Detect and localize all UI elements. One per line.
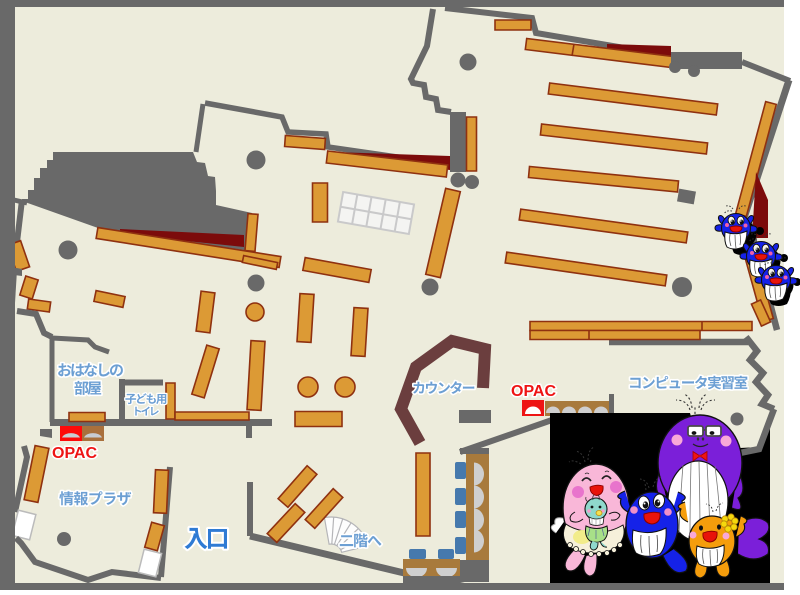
svg-text:OPAC: OPAC bbox=[52, 445, 97, 462]
svg-text:OPAC: OPAC bbox=[511, 383, 556, 400]
